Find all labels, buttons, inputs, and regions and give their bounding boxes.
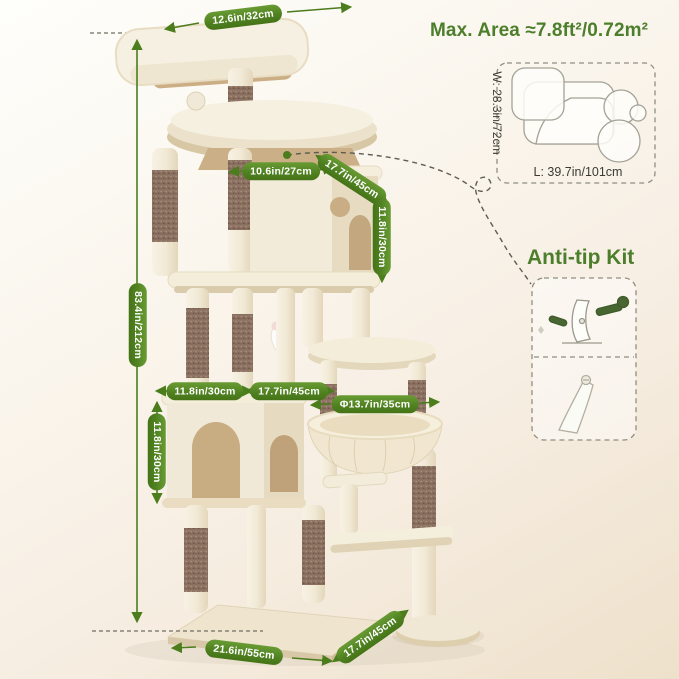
top-width-arrow-right (287, 7, 350, 12)
footprint-length-label: L: 39.7in/101cm (534, 165, 623, 179)
dim-total-height: 83.4in/212cm (129, 283, 147, 367)
dim-lower-condo-width: 11.8in/30cm (166, 382, 243, 400)
right-column-sisal (412, 466, 436, 530)
max-area-label: Max. Area ≈7.8ft²/0.72m² (430, 20, 648, 42)
product-dimension-infographic: Max. Area ≈7.8ft²/0.72m² Anti-tip Kit W:… (0, 0, 679, 679)
condo-arch-door (349, 215, 371, 270)
lower-condo (162, 392, 306, 508)
dim-upper-condo-height: 11.8in/30cm (373, 198, 391, 275)
footprint-perch-shape (512, 68, 564, 120)
dim-lower-condo-height: 11.8in/30cm (148, 413, 166, 490)
dim-basket-diameter: Φ13.7in/35cm (332, 395, 419, 413)
footprint-circle-bottom (598, 120, 640, 162)
ball-toy (187, 92, 205, 110)
condo-round-window (330, 197, 350, 217)
round-base (396, 615, 480, 647)
anti-tip-box (532, 278, 636, 440)
dim-upper-shelf-width: 10.6in/27cm (242, 162, 320, 180)
illustration-layer (0, 0, 679, 679)
cat-tree-illustration (114, 17, 480, 663)
connector-dot (283, 151, 291, 159)
lower-condo-arch-side (270, 435, 298, 492)
footprint-circle-small (630, 105, 646, 121)
step-post (340, 484, 358, 534)
base-posts (184, 505, 325, 613)
lower-condo-arch-front (192, 422, 240, 500)
dim-middle-depth: 17.7in/45cm (250, 382, 328, 400)
footprint-width-label: W: 28.3in/72cm (490, 71, 504, 154)
anti-tip-kit-title: Anti-tip Kit (527, 246, 634, 270)
